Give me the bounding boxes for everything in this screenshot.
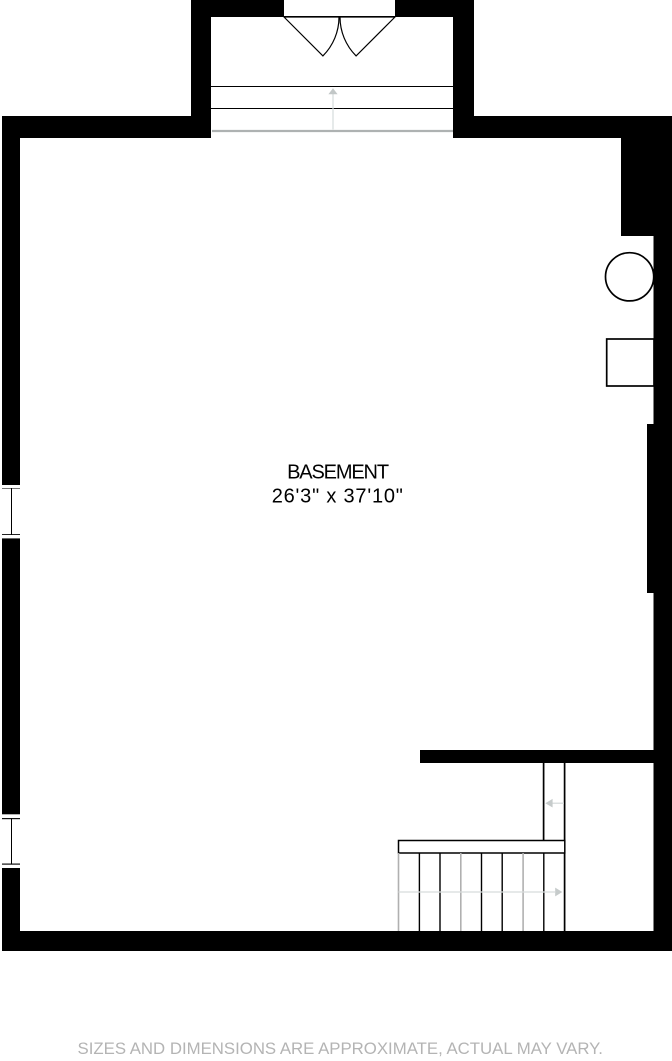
- svg-text:26'3" x 37'10": 26'3" x 37'10": [272, 486, 404, 508]
- svg-text:SIZES AND DIMENSIONS ARE APPRO: SIZES AND DIMENSIONS ARE APPROXIMATE, AC…: [78, 1039, 603, 1058]
- svg-text:BASEMENT: BASEMENT: [287, 461, 389, 483]
